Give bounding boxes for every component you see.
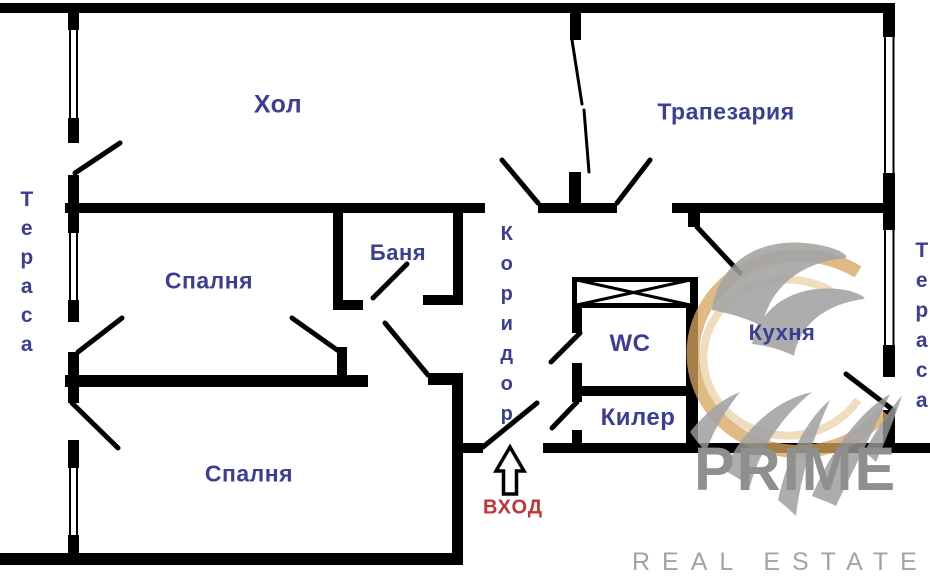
room-label-kitchen: Кухня xyxy=(749,320,816,346)
watermark-brand: PRIME xyxy=(694,441,897,497)
room-label-bedroom-top: Спалня xyxy=(165,268,253,295)
floor-plan: Хол Трапезария Спалня Баня Спалня WC Кил… xyxy=(0,0,930,586)
room-label-pantry: Килер xyxy=(601,404,676,432)
watermark-tagline: REAL ESTATE xyxy=(632,548,929,577)
room-label-bedroom-bottom: Спалня xyxy=(205,461,293,488)
room-label-terrace-right: Т е р а с а xyxy=(915,236,928,416)
room-label-hall: Хол xyxy=(254,91,302,120)
room-label-corridor: К о р и д о р xyxy=(500,219,513,429)
room-label-dining: Трапезария xyxy=(657,99,794,126)
entrance-label: ВХОД xyxy=(483,497,543,520)
room-label-terrace-left: Т е р а с а xyxy=(20,185,33,359)
room-label-bath: Баня xyxy=(370,240,426,266)
room-label-wc: WC xyxy=(610,330,651,358)
